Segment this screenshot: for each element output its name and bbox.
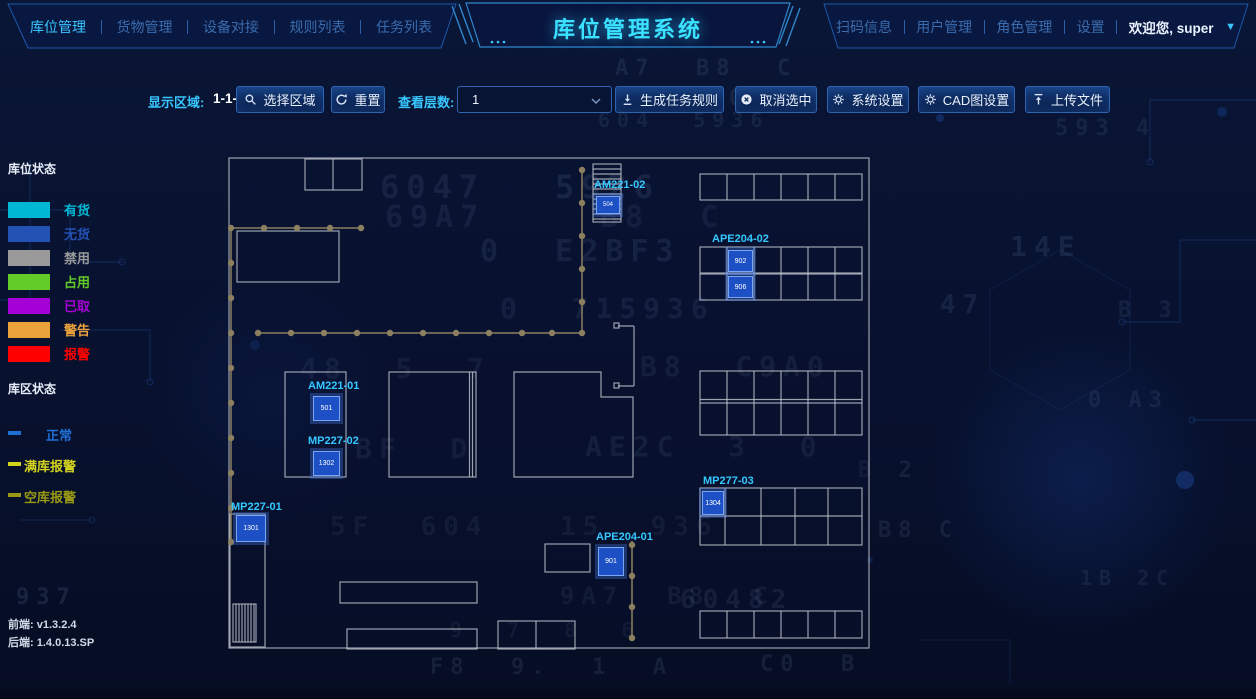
legend-swatch xyxy=(8,202,50,218)
refresh-icon xyxy=(335,93,348,106)
legend-item: 禁用 xyxy=(8,249,128,266)
button-label: 系统设置 xyxy=(851,90,903,109)
welcome-user: 欢迎您, super xyxy=(1129,17,1214,37)
chevron-down-icon xyxy=(591,98,601,104)
nav-right: 扫码信息 用户管理 角色管理 设置 欢迎您, super ▼ xyxy=(836,16,1236,38)
storage-cell[interactable]: 1302 xyxy=(313,451,340,476)
nav-item-settings[interactable]: 设置 xyxy=(1077,17,1105,37)
legend-item: 无货 xyxy=(8,225,128,242)
reset-button[interactable]: 重置 xyxy=(331,86,385,113)
nav-left: 库位管理 货物管理 设备对接 规则列表 任务列表 xyxy=(30,16,432,38)
nav-divider xyxy=(904,20,905,34)
nav-divider xyxy=(360,20,361,34)
legend-item: 报警 xyxy=(8,345,128,362)
legend-item: 有货 xyxy=(8,201,128,218)
backend-version-value: 1.4.0.13.SP xyxy=(37,637,95,649)
button-label: 重置 xyxy=(354,90,380,109)
search-icon xyxy=(244,93,257,106)
nav-divider xyxy=(1116,20,1117,34)
legend-label: 满库报警 xyxy=(24,456,76,475)
legend-label: 有货 xyxy=(64,200,90,219)
legend-item: 已取 xyxy=(8,297,128,314)
legend-swatch xyxy=(8,274,50,290)
legend-dash xyxy=(8,493,21,497)
nav-divider xyxy=(274,20,275,34)
bottom-band xyxy=(0,683,1256,699)
version-info: 前端: v1.3.2.4 后端: 1.4.0.13.SP xyxy=(8,616,94,652)
nav-item-roles[interactable]: 角色管理 xyxy=(996,17,1052,37)
nav-divider xyxy=(187,20,188,34)
system-settings-button[interactable]: 系统设置 xyxy=(827,86,909,113)
legend-label: 警告 xyxy=(64,320,90,339)
legend-label: 占用 xyxy=(64,272,90,291)
storage-cell[interactable]: 1304 xyxy=(702,491,724,515)
slot-status-title: 库位状态 xyxy=(8,160,128,177)
backend-version: 后端: 1.4.0.13.SP xyxy=(8,634,94,652)
legend-label: 已取 xyxy=(64,296,90,315)
button-label: CAD图设置 xyxy=(943,90,1009,109)
legend-area-item: 正常 xyxy=(8,427,128,439)
download-icon xyxy=(621,93,634,106)
device-label: AM221-01 xyxy=(308,380,359,392)
storage-cell[interactable]: 901 xyxy=(598,547,624,576)
nav-item-tasks[interactable]: 任务列表 xyxy=(376,17,432,37)
cad-settings-button[interactable]: CAD图设置 xyxy=(918,86,1015,113)
legend-area-item: 满库报警 xyxy=(8,458,128,470)
storage-cell[interactable]: 1301 xyxy=(236,515,266,542)
legend-label: 无货 xyxy=(64,224,90,243)
button-label: 选择区域 xyxy=(263,90,315,109)
legend-swatch xyxy=(8,250,50,266)
legend-area-item: 空库报警 xyxy=(8,489,128,501)
device-label: APE204-02 xyxy=(712,233,769,245)
view-layers-label: 查看层数: xyxy=(398,92,454,111)
storage-cell[interactable]: 906 xyxy=(728,276,753,298)
view-layers-select[interactable]: 1 xyxy=(457,86,612,113)
storage-cell[interactable]: 504 xyxy=(596,196,620,214)
cancel-circle-icon xyxy=(740,93,753,106)
nav-item-storage[interactable]: 库位管理 xyxy=(30,17,86,37)
legend-panel: 库位状态 有货 无货 禁用 占用 已取 警告 报警 库区状态 xyxy=(8,160,128,520)
app-root: A7 B8 CE C0604 59366047592669A7B8 C0 E2B… xyxy=(0,0,1256,699)
gear-icon xyxy=(832,93,845,106)
legend-swatch xyxy=(8,322,50,338)
device-label: MP227-01 xyxy=(231,501,282,513)
frontend-version-value: v1.3.2.4 xyxy=(37,619,77,631)
nav-item-users[interactable]: 用户管理 xyxy=(916,17,972,37)
legend-swatch xyxy=(8,346,50,362)
storage-cell[interactable]: 902 xyxy=(728,250,753,272)
frontend-version: 前端: v1.3.2.4 xyxy=(8,616,94,634)
button-label: 生成任务规则 xyxy=(640,90,718,109)
nav-item-rules[interactable]: 规则列表 xyxy=(290,17,346,37)
user-menu-caret-icon[interactable]: ▼ xyxy=(1225,21,1236,33)
cancel-selection-button[interactable]: 取消选中 xyxy=(735,86,817,113)
legend-label: 空库报警 xyxy=(24,487,76,506)
nav-divider xyxy=(1064,20,1065,34)
generate-task-rule-button[interactable]: 生成任务规则 xyxy=(615,86,724,113)
device-label: MP277-03 xyxy=(703,475,754,487)
storage-cell[interactable]: 501 xyxy=(313,396,340,421)
backend-version-label: 后端: xyxy=(8,637,34,649)
legend-item: 警告 xyxy=(8,321,128,338)
button-label: 取消选中 xyxy=(759,90,811,109)
display-area-label: 显示区域: xyxy=(148,92,204,111)
nav-divider xyxy=(984,20,985,34)
device-label: AM221-02 xyxy=(594,179,645,191)
device-label: MP227-02 xyxy=(308,435,359,447)
view-layers-value: 1 xyxy=(472,92,479,107)
legend-swatch xyxy=(8,298,50,314)
page-title: 库位管理系统 xyxy=(458,12,798,44)
frontend-version-label: 前端: xyxy=(8,619,34,631)
legend-dash xyxy=(8,431,21,435)
device-label: APE204-01 xyxy=(596,531,653,543)
legend-swatch xyxy=(8,226,50,242)
legend-dash xyxy=(8,462,21,466)
gear-icon xyxy=(924,93,937,106)
select-area-button[interactable]: 选择区域 xyxy=(236,86,324,113)
upload-file-button[interactable]: 上传文件 xyxy=(1025,86,1110,113)
upload-icon xyxy=(1032,93,1045,106)
legend-item: 占用 xyxy=(8,273,128,290)
nav-divider xyxy=(101,20,102,34)
legend-label: 报警 xyxy=(64,344,90,363)
legend-label: 禁用 xyxy=(64,248,90,267)
nav-item-goods[interactable]: 货物管理 xyxy=(117,17,173,37)
button-label: 上传文件 xyxy=(1051,90,1103,109)
area-status-title: 库区状态 xyxy=(8,380,128,397)
legend-label: 正常 xyxy=(46,425,72,444)
nav-item-device[interactable]: 设备对接 xyxy=(203,17,259,37)
nav-item-scan-info[interactable]: 扫码信息 xyxy=(836,17,892,37)
